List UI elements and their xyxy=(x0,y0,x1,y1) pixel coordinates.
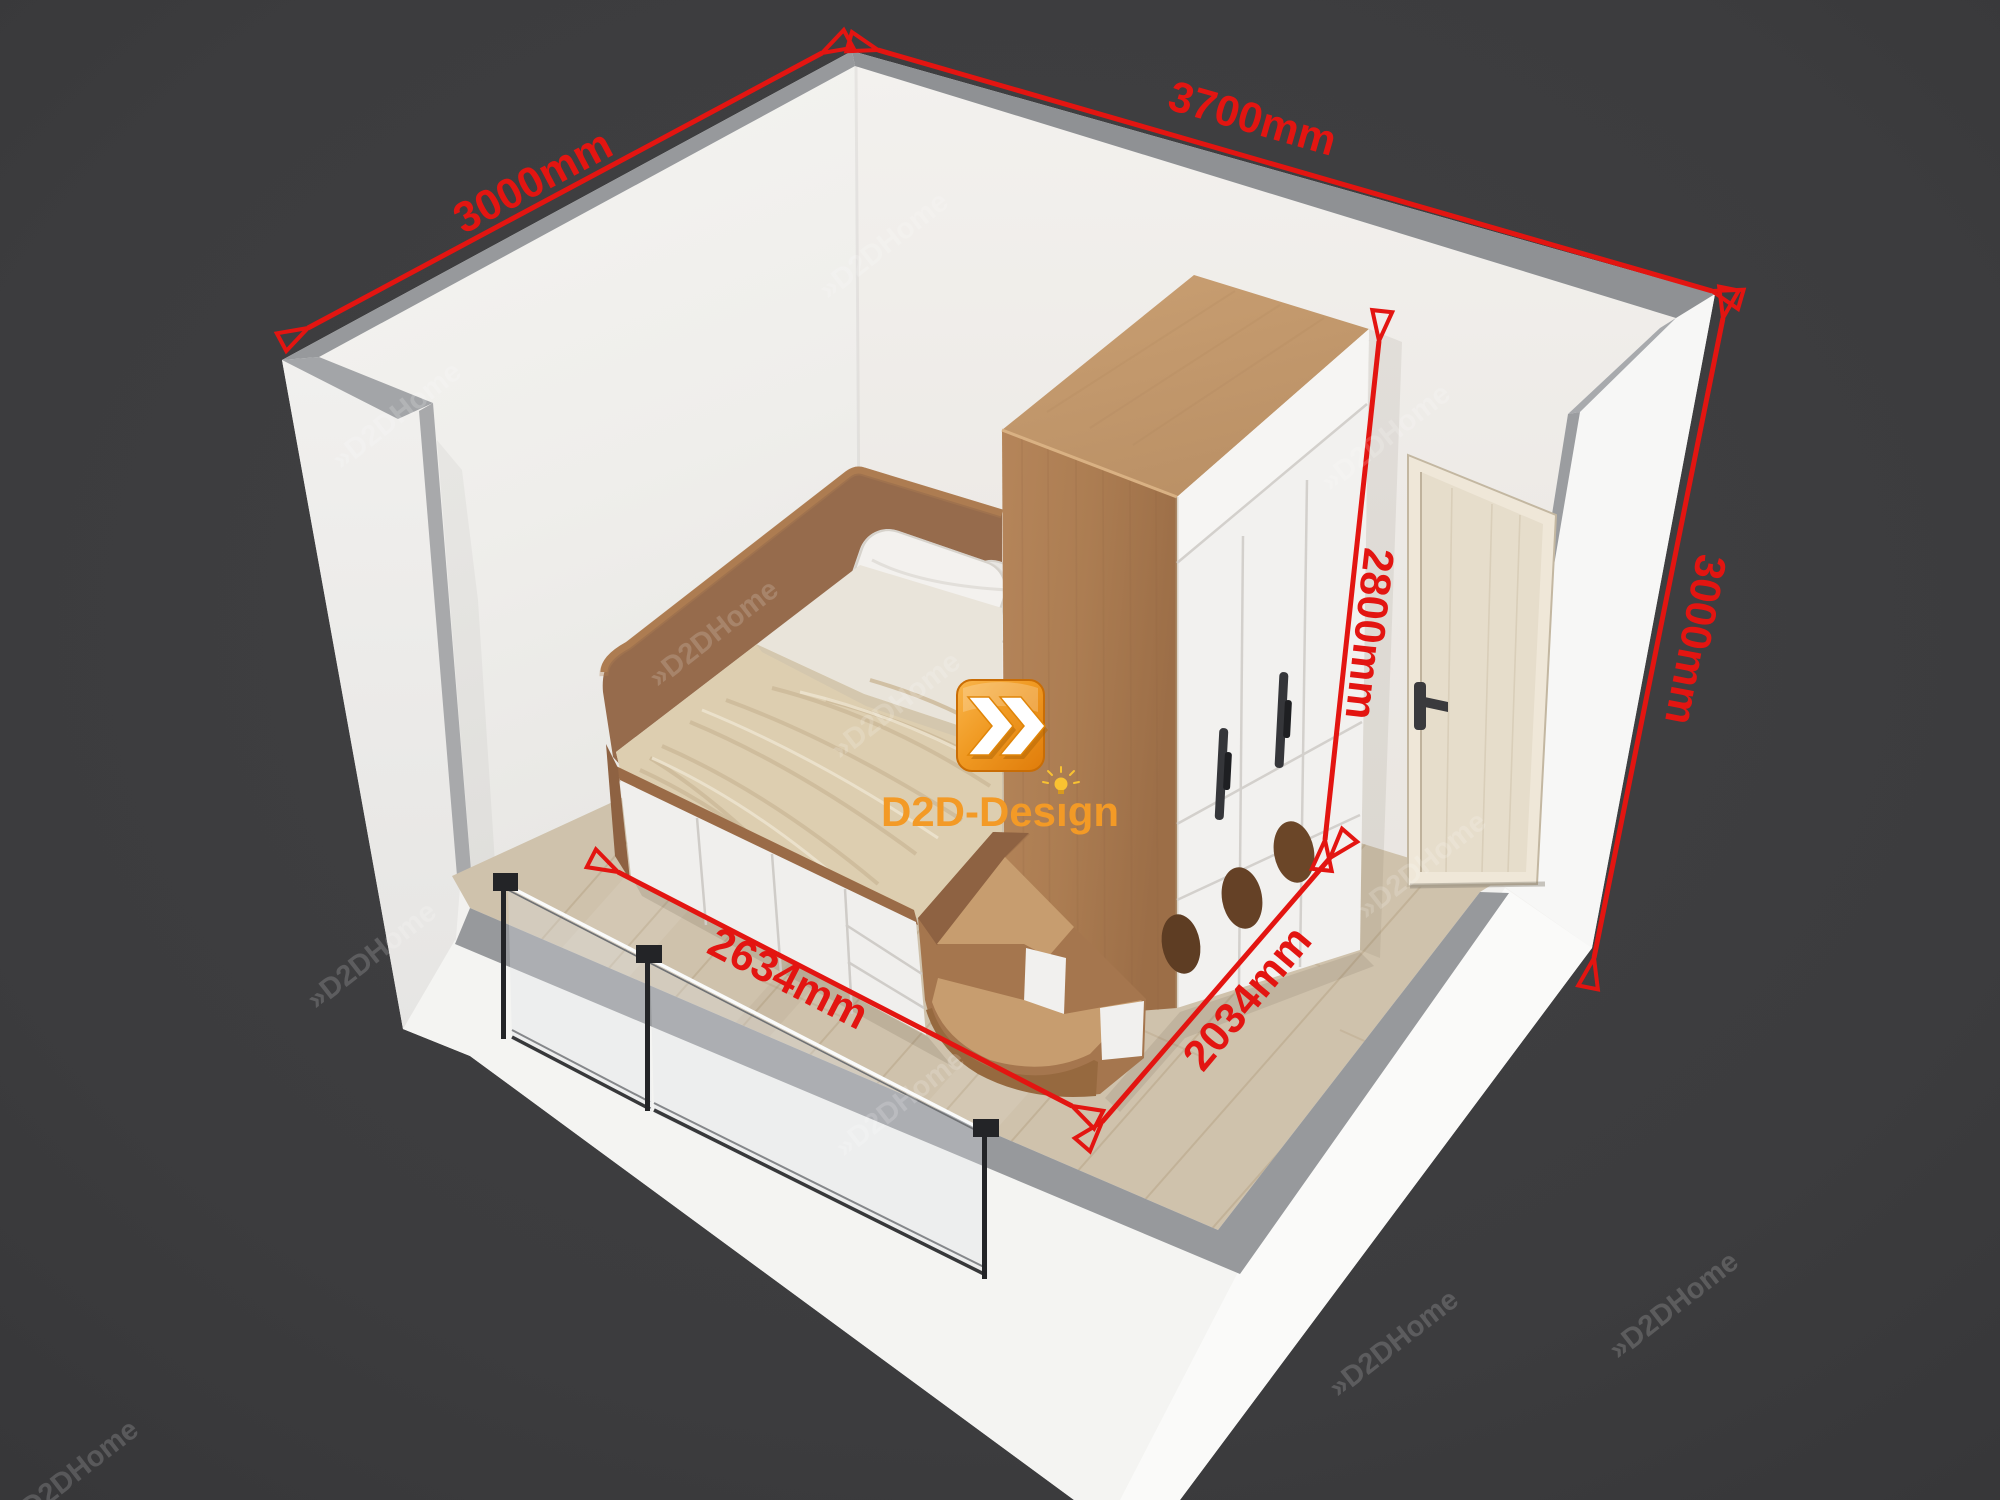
svg-text:D2D-Desıgn: D2D-Desıgn xyxy=(881,788,1119,835)
